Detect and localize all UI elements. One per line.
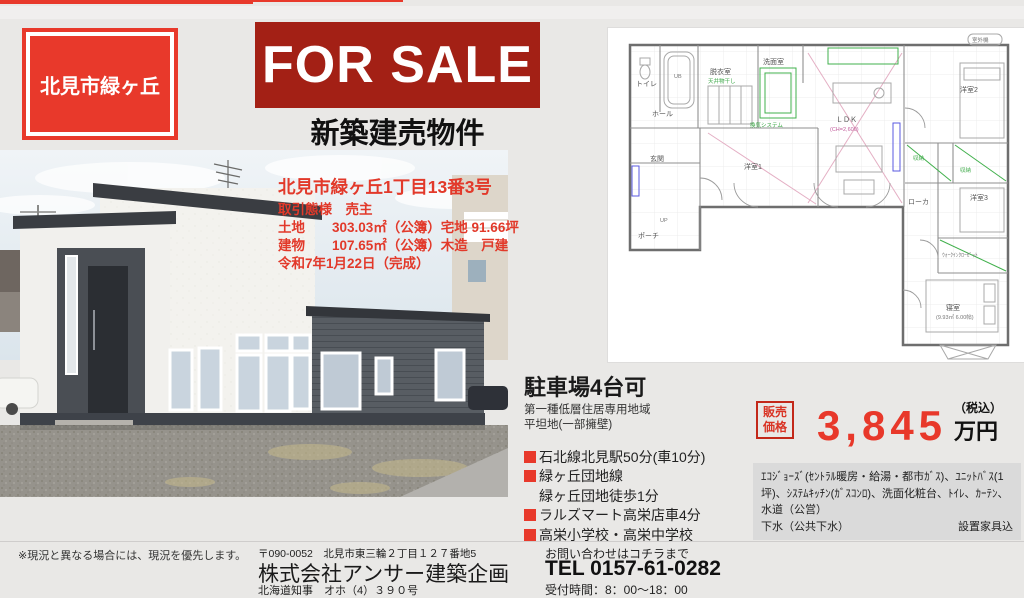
- contact-hours: 受付時間：8：00～18：00: [545, 581, 688, 598]
- property-address: 北見市緑ヶ丘1丁目13番3号: [278, 176, 528, 199]
- parking-heading: 駐車場4台可: [524, 370, 646, 402]
- label-room3: 洋室3: [970, 193, 988, 202]
- access-item-text: 石北線北見駅50分(車10分): [539, 447, 705, 467]
- equipment-list: ｴｺｼﾞｮｰｽﾞ(ｾﾝﾄﾗﾙ暖房・給湯・都市ｶﾞｽ)、ﾕﾆｯﾄﾊﾞｽ(1坪)、ｼ…: [761, 471, 1009, 516]
- red-square-bullet: [524, 509, 536, 521]
- label-bath: UB: [674, 74, 682, 80]
- entry-sidelight-window: [66, 256, 77, 374]
- label-walk-in-closet: ｳｫｰｸｲﾝｸﾛｰｾﾞｯﾄ: [942, 252, 978, 259]
- label-dressing-room: 脱衣室: [710, 67, 731, 76]
- equipment-sewer: 下水（公共下水）: [761, 519, 849, 536]
- terrain-text: 平坦地(一部擁壁): [524, 416, 612, 432]
- access-item-text: 緑ヶ丘団地徒歩1分: [539, 486, 659, 506]
- label-ldk: ＬＤＫ: [836, 116, 857, 124]
- label-closet-1: 収納: [913, 154, 925, 162]
- property-details: 北見市緑ヶ丘1丁目13番3号 取引態様 売主 土地 303.03㎡（公簿）宅地 …: [278, 176, 528, 272]
- location-badge: 北見市緑ヶ丘: [22, 28, 178, 140]
- label-bedroom-size: (9.93㎡ 6.00帖): [936, 313, 974, 321]
- top-red-strip: [0, 0, 253, 4]
- exterior-walls: [630, 45, 1008, 345]
- access-item-text: ラルズマート高栄店車4分: [539, 505, 701, 525]
- price-amount: 3,845: [812, 402, 952, 450]
- access-item: 緑ヶ丘団地徒歩1分: [524, 486, 754, 506]
- equipment-box: ｴｺｼﾞｮｰｽﾞ(ｾﾝﾄﾗﾙ暖房・給湯・都市ｶﾞｽ)、ﾕﾆｯﾄﾊﾞｽ(1坪)、ｼ…: [753, 463, 1021, 540]
- price-unit: 万円: [954, 414, 998, 446]
- for-sale-banner: FOR SALE: [255, 22, 540, 108]
- label-ldk-ceiling-height: (CH=2,600): [830, 127, 859, 133]
- price-label-box: 販売価格: [756, 401, 794, 439]
- label-ceiling-drying: 天井物干し: [708, 77, 736, 85]
- label-bedroom: 寝室: [946, 303, 960, 312]
- equipment-furniture-note: 設置家具込: [958, 519, 1013, 536]
- label-outdoor-unit: 室外機: [972, 36, 989, 44]
- label-washroom: 洗面室: [763, 57, 784, 66]
- new-build-subtitle: 新築建売物件: [255, 110, 540, 152]
- red-square-bullet: [524, 470, 536, 482]
- label-ventilation: 換気システム: [750, 121, 783, 129]
- floor-plan-card: トイレ UB 脱衣室 天井物干し 洗面室 換気システム ホール 玄関 UP ポー…: [608, 28, 1024, 362]
- label-up: UP: [660, 218, 668, 224]
- dark-car: [468, 386, 508, 410]
- label-closet-2: 収納: [960, 166, 972, 174]
- zoning-text: 第一種低層住居専用地域: [524, 401, 651, 417]
- contact-phone: TEL 0157-61-0282: [545, 557, 721, 581]
- access-item: 石北線北見駅50分(車10分): [524, 447, 754, 467]
- floor-plan-drawing: トイレ UB 脱衣室 天井物干し 洗面室 換気システム ホール 玄関 UP ポー…: [608, 28, 1024, 362]
- label-corridor: ローカ: [908, 198, 929, 206]
- red-square-bullet: [524, 451, 536, 463]
- red-square-bullet: [524, 529, 536, 541]
- label-room1: 洋室1: [744, 162, 762, 171]
- location-badge-label: 北見市緑ヶ丘: [40, 70, 160, 99]
- access-list: 石北線北見駅50分(車10分) 緑ヶ丘団地線 緑ヶ丘団地徒歩1分 ラルズマート高…: [524, 447, 754, 545]
- for-sale-banner-label: FOR SALE: [262, 35, 533, 95]
- top-red-strip-thin: [253, 0, 403, 2]
- footer-divider: [0, 541, 1024, 542]
- property-completion: 令和7年1月22日（完成）: [278, 255, 528, 273]
- access-item: 緑ヶ丘団地線: [524, 467, 754, 487]
- label-toilet: トイレ: [636, 81, 657, 88]
- access-item-text: 緑ヶ丘団地線: [539, 466, 623, 486]
- label-porch: ポーチ: [638, 232, 659, 240]
- label-entrance: 玄関: [650, 154, 664, 163]
- label-room2: 洋室2: [960, 85, 978, 94]
- top-light-band: [0, 6, 1024, 19]
- house-shadow: [20, 425, 485, 430]
- property-land: 土地 303.03㎡（公簿）宅地 91.66坪: [278, 219, 528, 237]
- label-hall: ホール: [652, 110, 673, 118]
- access-item: ラルズマート高栄店車4分: [524, 506, 754, 526]
- property-transaction: 取引態様 売主: [278, 201, 528, 219]
- disclaimer-text: ※現況と異なる場合には、現況を優先します。: [18, 547, 246, 563]
- property-building: 建物 107.65㎡（公簿）木造 戸建: [278, 237, 528, 255]
